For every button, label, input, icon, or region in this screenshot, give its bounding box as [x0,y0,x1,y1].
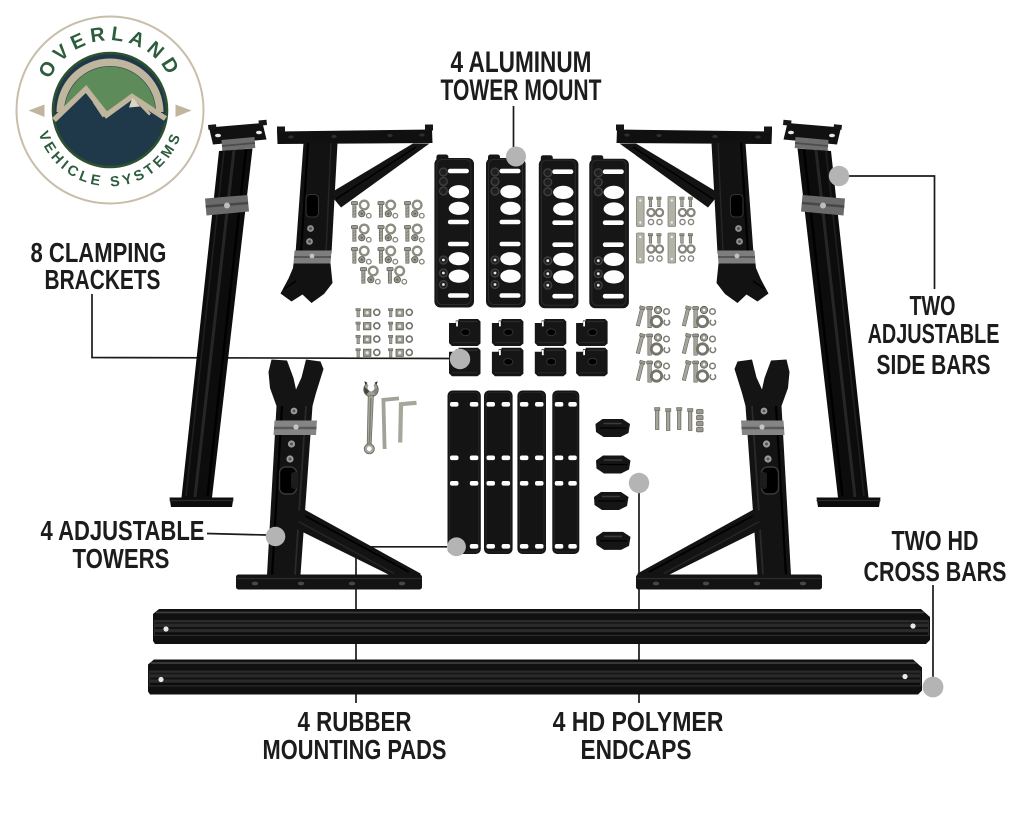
svg-text:MOUNTING PADS: MOUNTING PADS [263,734,447,765]
svg-text:4 HD POLYMER: 4 HD POLYMER [553,707,724,738]
svg-text:TOWERS: TOWERS [73,544,170,575]
svg-text:BRACKETS: BRACKETS [45,265,161,296]
svg-text:ENDCAPS: ENDCAPS [581,735,692,766]
svg-text:4 RUBBER: 4 RUBBER [298,707,412,738]
svg-text:TWO HD: TWO HD [891,525,978,556]
svg-text:4 ADJUSTABLE: 4 ADJUSTABLE [41,516,205,547]
svg-text:ADJUSTABLE: ADJUSTABLE [868,319,1000,350]
svg-text:TOWER MOUNT: TOWER MOUNT [441,75,602,107]
svg-text:SIDE BARS: SIDE BARS [877,350,991,381]
svg-text:TWO: TWO [910,291,956,322]
svg-text:8 CLAMPING: 8 CLAMPING [31,238,167,269]
svg-text:CROSS BARS: CROSS BARS [864,556,1007,587]
